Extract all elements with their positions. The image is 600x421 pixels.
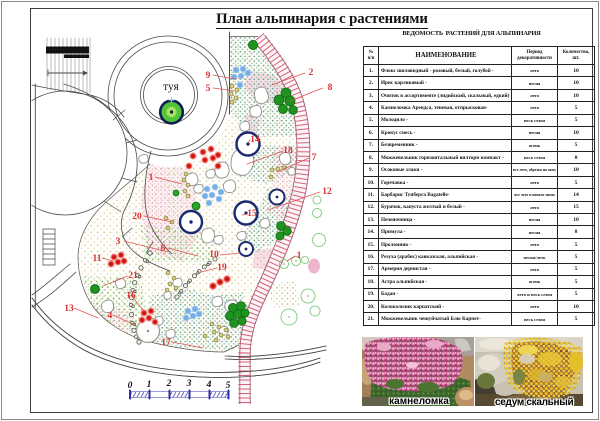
svg-text:3: 3 [116, 237, 121, 247]
svg-text:8: 8 [328, 83, 333, 93]
svg-text:6: 6 [161, 244, 166, 254]
svg-text:20: 20 [132, 212, 142, 222]
svg-text:0: 0 [128, 381, 133, 391]
svg-text:4: 4 [206, 380, 212, 390]
svg-text:4: 4 [108, 311, 113, 321]
svg-text:19: 19 [217, 263, 227, 273]
svg-text:5: 5 [206, 84, 211, 94]
svg-text:14: 14 [250, 135, 260, 145]
svg-text:1: 1 [297, 251, 302, 261]
svg-text:11: 11 [93, 254, 102, 264]
svg-text:1: 1 [147, 380, 152, 390]
svg-text:13: 13 [64, 304, 74, 314]
svg-text:3: 3 [186, 379, 192, 389]
svg-text:17: 17 [161, 338, 171, 348]
svg-text:21: 21 [128, 271, 138, 281]
svg-text:1: 1 [149, 173, 154, 183]
svg-text:18: 18 [283, 146, 293, 156]
svg-text:7: 7 [312, 153, 317, 163]
svg-text:5: 5 [226, 381, 231, 391]
svg-text:2: 2 [309, 68, 314, 78]
svg-text:9: 9 [206, 71, 211, 81]
svg-text:туя: туя [163, 81, 179, 93]
svg-text:10: 10 [209, 250, 219, 260]
svg-text:15: 15 [247, 209, 257, 219]
svg-text:2: 2 [166, 379, 172, 389]
svg-text:12: 12 [322, 187, 332, 197]
